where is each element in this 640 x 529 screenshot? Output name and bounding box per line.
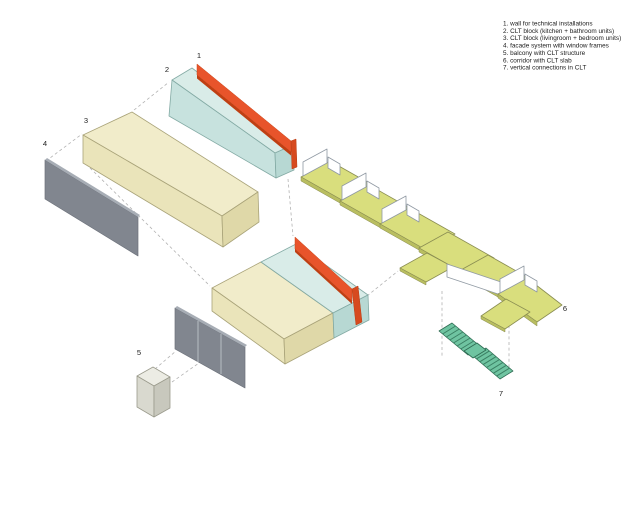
- legend-line-5: 5. balcony with CLT structure: [503, 50, 586, 57]
- legend-line-7: 7. vertical connections in CLT: [503, 65, 586, 72]
- legend-line-2: 2. CLT block (kitchen + bathroom units): [503, 28, 614, 35]
- diagram-canvas: 1 2 3 4 5 6 7 1. wall for technical inst…: [0, 0, 640, 529]
- legend-line-6: 6. corridor with CLT slab: [503, 57, 572, 64]
- legend-line-1: 1. wall for technical installations: [503, 21, 593, 28]
- label-2: 2: [165, 65, 169, 74]
- label-6: 6: [563, 304, 567, 313]
- label-4: 4: [43, 139, 47, 148]
- label-5: 5: [137, 348, 141, 357]
- stairs-clt: [439, 323, 513, 379]
- clt-exploded-axonometric-diagram: 1 2 3 4 5 6 7 1. wall for technical inst…: [0, 0, 640, 529]
- balcony-cube: [137, 367, 170, 417]
- label-1: 1: [197, 51, 201, 60]
- legend: 1. wall for technical installations 2. C…: [503, 21, 621, 72]
- label-3: 3: [84, 116, 88, 125]
- legend-line-4: 4. facade system with window frames: [503, 43, 609, 50]
- legend-line-3: 3. CLT block (livingroom + bedroom units…: [503, 35, 621, 42]
- label-7: 7: [499, 389, 503, 398]
